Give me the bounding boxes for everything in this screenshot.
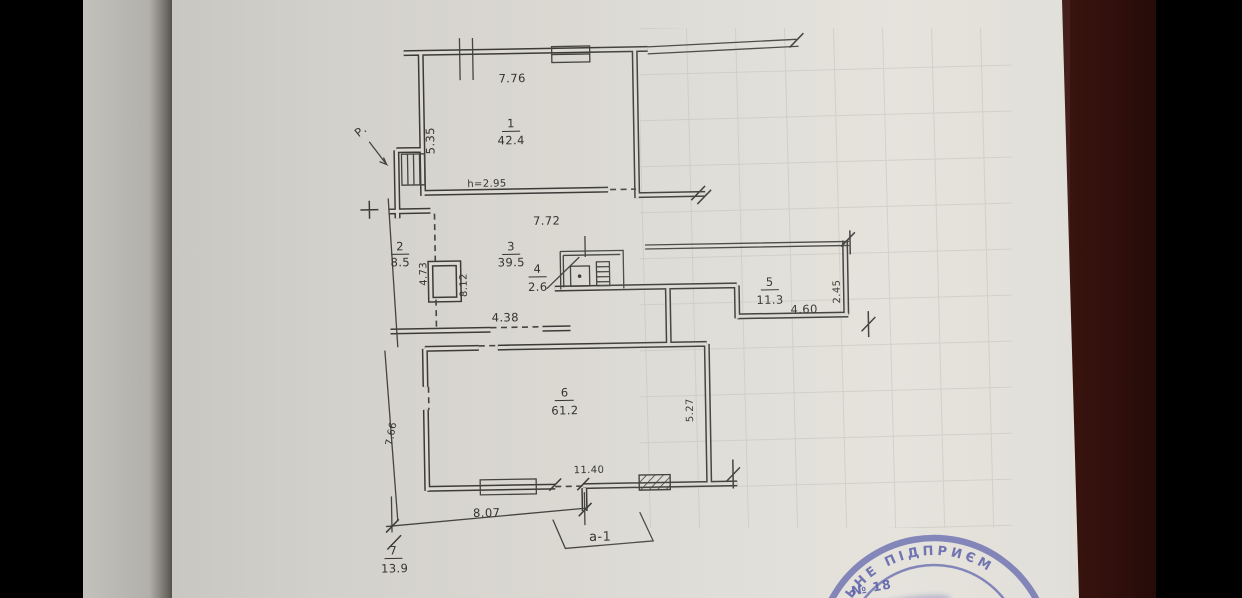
photo-sheen bbox=[600, 0, 1070, 598]
dim-room2-left: 4.73 bbox=[418, 262, 429, 286]
dim-corridor-width: 7.72 bbox=[533, 213, 560, 227]
room-6-area: 61.2 bbox=[551, 403, 578, 417]
scene-canvas: 1 42.4 2 8.5 3 39.5 4 2.6 5 11.3 6 61.2 … bbox=[0, 0, 1242, 598]
underlying-page-edge bbox=[83, 0, 175, 598]
photo-of-floor-plan-page: 1 42.4 2 8.5 3 39.5 4 2.6 5 11.3 6 61.2 … bbox=[0, 0, 1242, 598]
dim-room3-left: 8.12 bbox=[459, 273, 470, 297]
room-3-area: 39.5 bbox=[498, 255, 525, 269]
room-6-number: 6 bbox=[561, 385, 569, 399]
room-3-number: 3 bbox=[507, 239, 515, 253]
dim-ceiling-height: h=2.95 bbox=[467, 178, 507, 190]
room-2-area: 8.5 bbox=[390, 255, 410, 269]
dim-room6-inner-width: 11.40 bbox=[574, 465, 605, 477]
dim-bottom-width: 8.07 bbox=[473, 506, 500, 520]
room-4-area: 2.6 bbox=[528, 280, 548, 294]
room-2-number: 2 bbox=[396, 239, 404, 253]
dim-top-width: 7.76 bbox=[498, 71, 525, 85]
room-7-number: 7 bbox=[389, 543, 397, 557]
room-4-number: 4 bbox=[533, 262, 541, 276]
dim-hall-width: 4.38 bbox=[492, 310, 519, 324]
room-7-area: 13.9 bbox=[381, 561, 408, 575]
dim-room1-left: 5.35 bbox=[423, 127, 437, 154]
room-1-number: 1 bbox=[507, 116, 515, 130]
photo-black-border-right bbox=[1156, 0, 1242, 598]
room-1-area: 42.4 bbox=[497, 133, 524, 147]
